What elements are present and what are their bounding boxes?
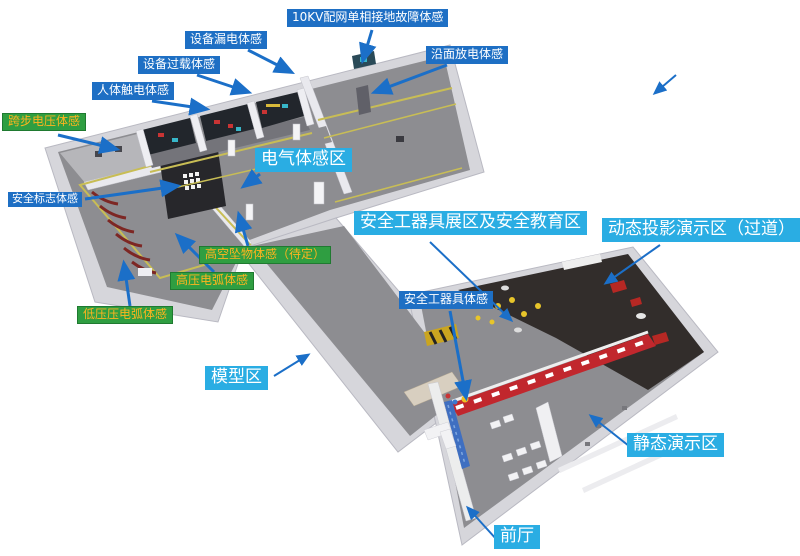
label-safety-sign: 安全标志体感 [8,192,82,207]
tools-item-red [446,394,451,399]
booth-screen-cyan [236,127,241,131]
label-step-voltage: 跨步电压体感 [2,113,86,131]
booth-strip-yellow [266,104,280,107]
label-low-voltage-arc: 低压压电弧体感 [77,306,173,324]
grid-icon [183,172,201,190]
floor-equipment [396,136,404,142]
booth-screen-red [214,120,220,124]
label-human-electric-shock: 人体触电体感 [92,82,174,100]
label-equipment-leakage: 设备漏电体感 [185,31,267,49]
booth-screen-red [158,133,164,137]
booth-screen-cyan [172,138,178,142]
booth-screen-red [228,124,233,128]
label-front-hall: 前厅 [494,525,540,549]
label-electric-zone: 电气体感区 [255,148,352,172]
arrow-model-zone [274,355,308,376]
label-surface-discharge: 沿面放电体感 [426,46,508,64]
label-static-demo-zone: 静态演示区 [627,433,724,457]
arrow-equipment-leakage [248,50,291,72]
equipment-block [115,146,122,152]
arrow-equipment-overload [197,75,248,92]
white-display-table [138,268,152,276]
arrow-misc [655,75,676,93]
arrow-human-electric-shock [152,101,206,109]
tools-item-blue [453,400,458,405]
white-equipment [636,313,646,319]
equipment-block [95,151,102,157]
label-high-voltage-arc: 高压电弧体感 [170,272,254,290]
booth-screen-cyan [282,104,288,108]
label-model-zone: 模型区 [205,366,268,390]
floorplan-diagram: 10KV配网单相接地故障体感 设备漏电体感 设备过载体感 人体触电体感 沿面放电… [0,0,800,556]
booth-screen-red [262,110,267,114]
label-falling-object: 高空坠物体感（待定） [199,246,331,264]
label-tools-exhibition-zone: 安全工器具展区及安全教育区 [354,211,587,235]
label-equipment-overload: 设备过载体感 [138,56,220,74]
label-safety-tools-exp: 安全工器具体感 [399,291,493,309]
label-kv10-fault: 10KV配网单相接地故障体感 [287,9,448,27]
label-dynamic-projection-zone: 动态投影演示区（过道） [602,218,800,242]
